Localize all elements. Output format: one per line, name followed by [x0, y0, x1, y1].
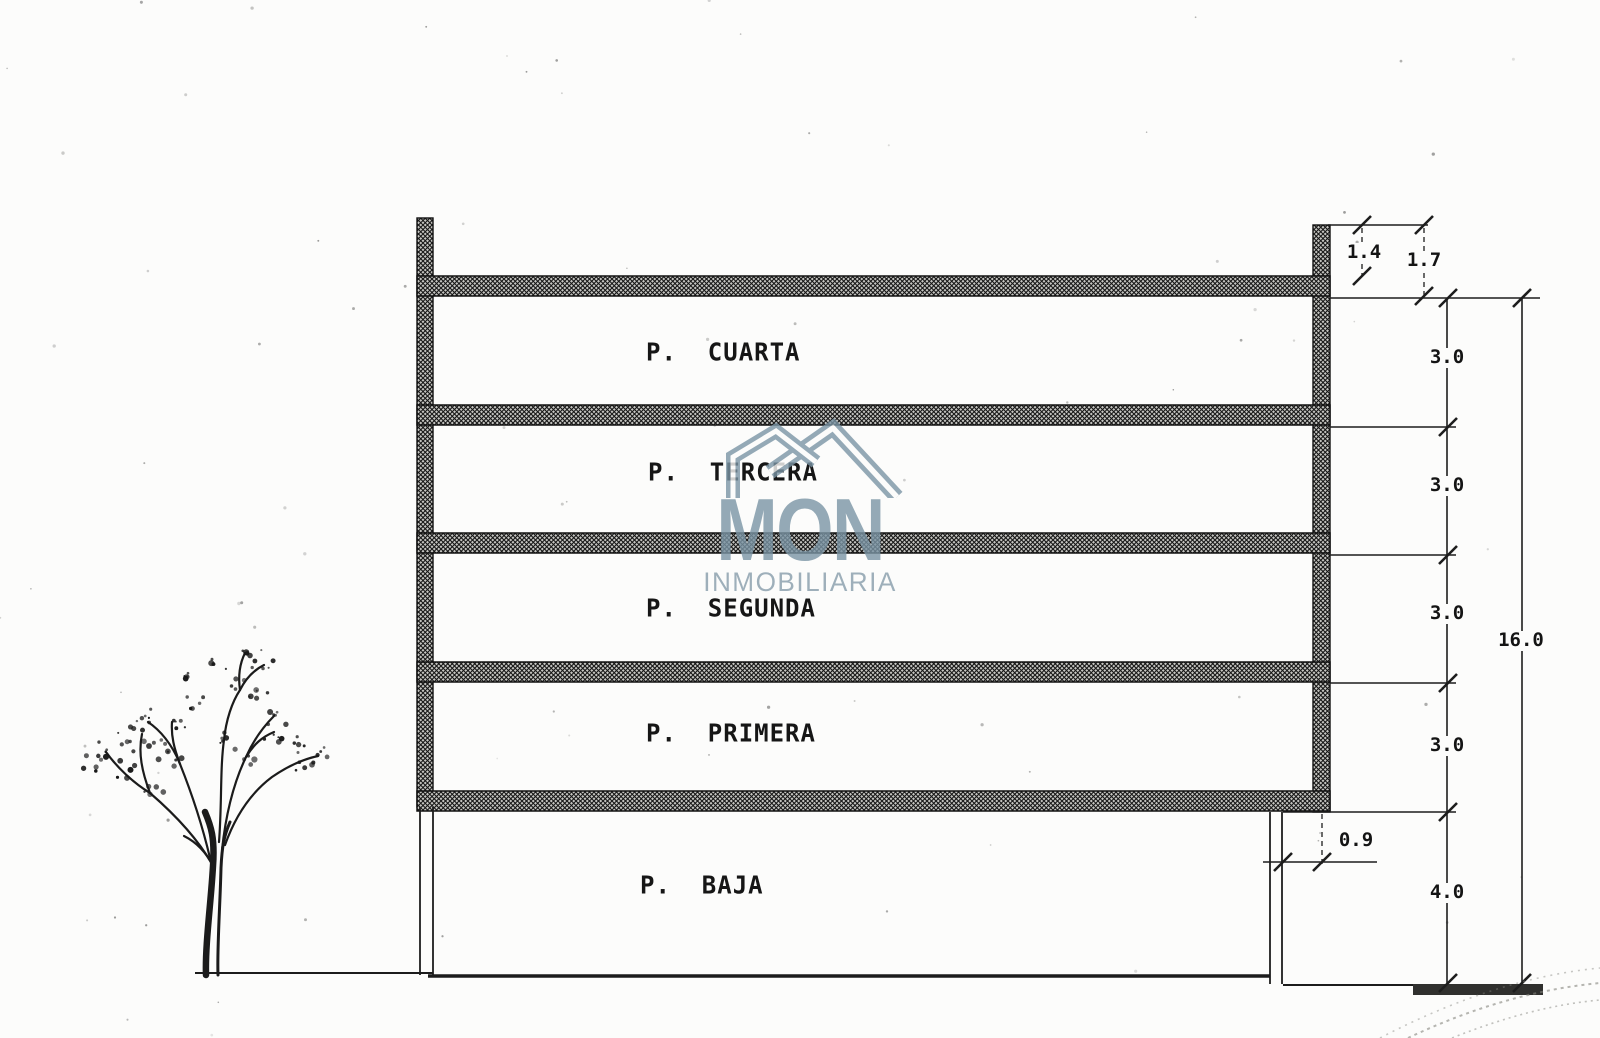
dim-total-height: 16.0: [1496, 631, 1546, 651]
scan-artifact-arcs: [1380, 968, 1600, 1038]
floor-label-tercera: P. TERCERA: [648, 457, 818, 486]
dim-top-left: 1.4: [1345, 243, 1383, 263]
elevation-drawing: P. CUARTA P. TERCERA P. SEGUNDA P. PRIME…: [0, 0, 1600, 1038]
dim-floor-2: 3.0: [1428, 604, 1466, 624]
dim-floor-4: 3.0: [1428, 348, 1466, 368]
floor-slabs: [417, 276, 1330, 811]
ground-hatch-strip: [1413, 984, 1543, 995]
dim-ground-floor: 4.0: [1428, 883, 1466, 903]
dim-top-right: 1.7: [1405, 251, 1443, 271]
dim-setback: 0.9: [1337, 831, 1375, 851]
dimension-lines: [1263, 225, 1540, 983]
floor-label-primera: P. PRIMERA: [646, 718, 816, 747]
left-wall: [417, 218, 433, 807]
drawing-linework: [0, 0, 1600, 1038]
floor-label-cuarta: P. CUARTA: [646, 337, 801, 366]
dim-floor-1: 3.0: [1428, 736, 1466, 756]
dim-floor-3: 3.0: [1428, 476, 1466, 496]
right-wall: [1313, 225, 1330, 812]
floor-label-segunda: P. SEGUNDA: [646, 593, 816, 622]
tree-sketch: [81, 649, 330, 975]
ground-line: [195, 973, 1543, 985]
ground-floor-walls: [420, 807, 1282, 984]
floor-label-baja: P. BAJA: [640, 870, 764, 899]
